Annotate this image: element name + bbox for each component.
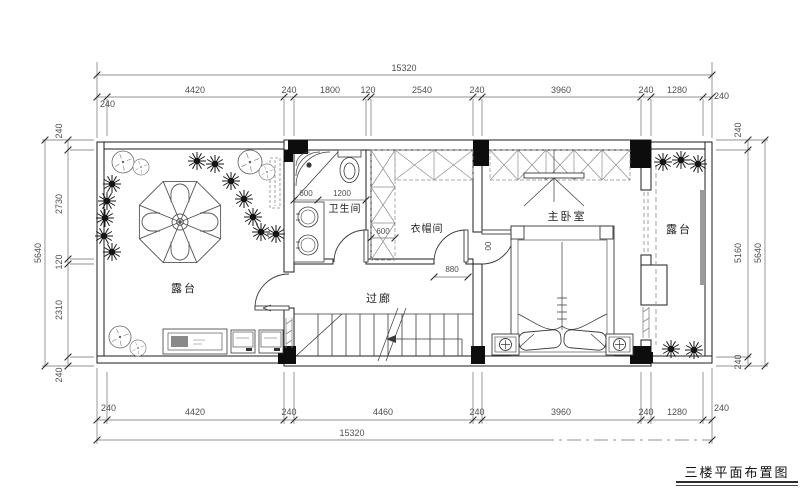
tree-icon	[112, 151, 134, 173]
tree-icon	[130, 340, 146, 356]
wall-terrace-right-east	[705, 142, 712, 363]
dimension-labels-left: 5640 240 2730 120 2310 240	[33, 123, 64, 382]
dim-shower: 600	[299, 189, 313, 198]
stairs	[294, 308, 473, 361]
bush-icon	[235, 190, 253, 208]
dim-top-4: 120	[360, 85, 375, 95]
wall-terrace-left-top	[97, 142, 284, 149]
nightstand-right	[606, 334, 633, 355]
bush-icon	[662, 340, 680, 358]
bedroom-east-niche	[641, 265, 667, 305]
bush-icon	[103, 175, 121, 193]
door-bathroom	[334, 230, 368, 262]
dim-top-8: 240	[638, 85, 653, 95]
dim-top-5: 2540	[412, 85, 432, 95]
dimension-chain-top	[94, 62, 716, 138]
column	[471, 346, 485, 364]
bush-icon	[206, 155, 224, 173]
wall-terrace-right-bottom	[651, 356, 712, 363]
column	[473, 140, 489, 166]
room-label-terrace-left: 露台	[171, 281, 197, 295]
vanity-sinks	[294, 202, 324, 262]
dim-bottom-6: 240	[638, 407, 653, 417]
dim-top-1: 4420	[185, 85, 205, 95]
dim-toilet: 1200	[333, 189, 351, 198]
dim-bottom-8: 240	[714, 403, 729, 413]
room-label-terrace-right: 露台	[666, 222, 692, 236]
door-terrace	[255, 274, 289, 311]
dim-top-9: 1280	[667, 85, 687, 95]
dim-left-total: 5640	[33, 243, 43, 263]
tree-icon	[133, 159, 149, 175]
floor-plan-canvas: 15320 240 4420 240 1800 120 2540 240 396…	[0, 0, 800, 497]
wall-bedroom-west-lower	[473, 264, 482, 356]
dim-door: 880	[445, 265, 459, 274]
column	[630, 140, 651, 168]
tv-wall-mount	[524, 150, 584, 206]
wall-top-main	[284, 140, 651, 150]
dim-right-total: 5640	[753, 243, 763, 263]
wall-bathroom-west-upper	[284, 150, 294, 272]
room-label-cloakroom: 衣帽间	[411, 222, 444, 235]
dim-left-3: 2310	[54, 300, 64, 320]
window-bedroom-east-upper	[644, 192, 648, 253]
wall-terrace-left-west	[97, 142, 104, 363]
toilet	[338, 150, 361, 183]
dim-top-10: 240	[714, 91, 729, 101]
dim-bottom-5: 3960	[551, 407, 571, 417]
drawing-title: 三楼平面布置图	[684, 465, 789, 480]
dim-bottom-4: 240	[469, 407, 484, 417]
column	[284, 150, 293, 162]
bush-icon	[103, 243, 121, 261]
closet-cloakroom-horizontal	[395, 150, 473, 180]
bush-icon	[252, 223, 270, 241]
dim-top-3: 1800	[320, 85, 340, 95]
dim-top-7: 3960	[551, 85, 571, 95]
stair-direction-line	[394, 339, 462, 356]
appliance-unit-1	[231, 330, 255, 353]
dimension-chain-bottom	[94, 368, 716, 444]
stair-diagonal	[296, 314, 342, 356]
window-bedroom-east-lower	[643, 307, 649, 338]
dimension-labels-bottom: 15320 240 4420 240 4460 240 3960 240 128…	[101, 403, 729, 438]
closet-cloakroom-vertical	[371, 150, 395, 260]
room-label-corridor: 过廊	[366, 291, 392, 305]
dim-right-2: 240	[733, 354, 743, 369]
dim-left-0: 240	[54, 123, 64, 138]
dim-partial: 00	[484, 241, 493, 250]
dim-left-2: 120	[54, 254, 64, 269]
dim-bottom-2: 240	[281, 407, 296, 417]
tree-icon	[238, 150, 262, 174]
dim-bottom-7: 1280	[667, 407, 687, 417]
dim-closet: 600	[376, 227, 390, 236]
dim-top-total: 15320	[391, 63, 416, 73]
bush-icon	[244, 208, 262, 226]
wall-bottom-main	[284, 356, 651, 366]
bush-icon	[267, 225, 285, 243]
parasol-table	[139, 181, 220, 262]
dim-bottom-3: 4460	[373, 407, 393, 417]
bush-icon	[689, 155, 707, 173]
nightstand-left	[492, 334, 519, 355]
appliance-unit-2	[259, 330, 283, 353]
terrace-right-railing	[700, 190, 705, 285]
dim-bottom-0: 240	[101, 403, 116, 413]
dim-left-4: 240	[54, 367, 64, 382]
laundry-area	[163, 329, 283, 354]
bush-icon	[222, 172, 240, 190]
dimension-chain-left	[42, 137, 94, 370]
title-block: 三楼平面布置图	[676, 465, 798, 486]
bedroom-fixtures	[492, 150, 633, 356]
bush-icon	[672, 151, 690, 169]
dim-top-0: 240	[100, 99, 115, 109]
appliance-washer-counter	[163, 329, 227, 354]
floor-plan-page: 15320 240 4420 240 1800 120 2540 240 396…	[0, 0, 800, 497]
dim-top-2: 240	[281, 85, 296, 95]
bush-icon	[654, 153, 672, 171]
room-label-bathroom: 卫生间	[329, 202, 362, 215]
wall-terrace-left-bottom	[97, 356, 284, 363]
dim-bottom-1: 4420	[185, 407, 205, 417]
dim-left-1: 2730	[54, 194, 64, 214]
room-label-bedroom: 主卧室	[548, 209, 587, 223]
dimension-labels-top: 15320 240 4420 240 1800 120 2540 240 396…	[100, 63, 729, 109]
wall-terrace-right-top	[651, 142, 712, 149]
dim-right-1: 5160	[733, 243, 743, 263]
column	[643, 352, 653, 363]
bed	[511, 226, 614, 356]
dim-right-0: 240	[733, 122, 743, 137]
dim-bottom-total: 15320	[339, 428, 364, 438]
tree-icon	[109, 326, 131, 348]
wall-bedroom-east-b	[641, 255, 651, 265]
dim-top-6: 240	[469, 85, 484, 95]
tree-icon	[259, 164, 275, 180]
bush-icon	[188, 152, 206, 170]
